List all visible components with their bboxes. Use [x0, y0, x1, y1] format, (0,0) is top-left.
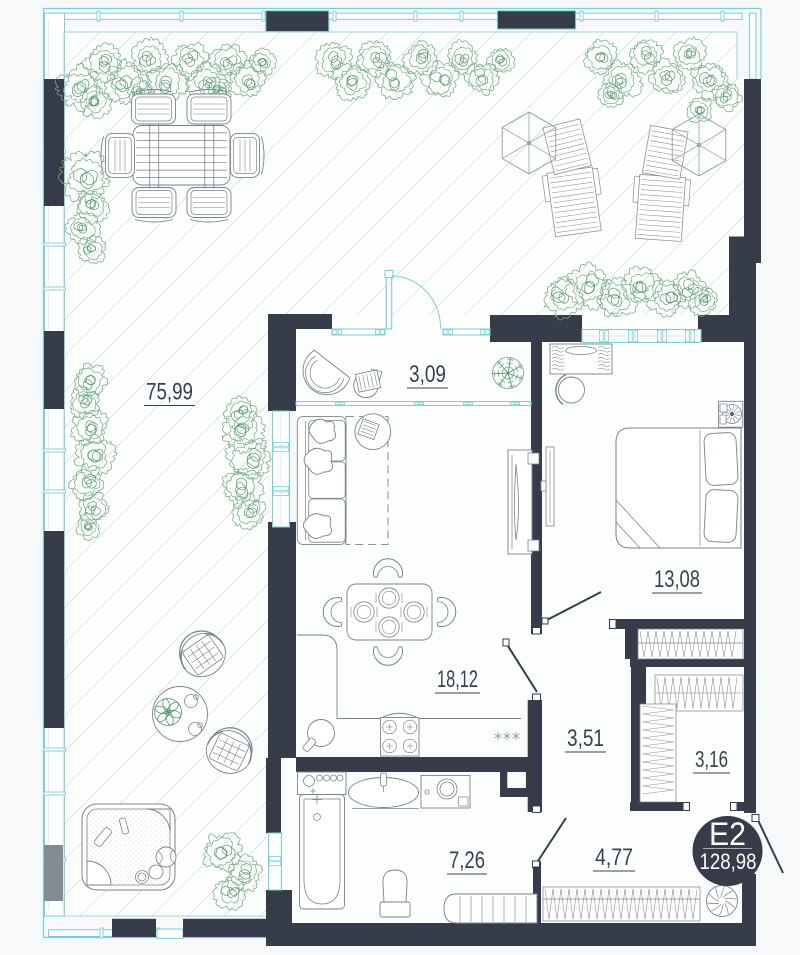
svg-text:75,99: 75,99 — [146, 379, 193, 406]
svg-text:3,16: 3,16 — [695, 746, 728, 772]
svg-text:4,77: 4,77 — [595, 844, 633, 871]
svg-text:128,98: 128,98 — [700, 849, 757, 874]
svg-text:3,09: 3,09 — [409, 361, 446, 388]
svg-text:13,08: 13,08 — [654, 566, 700, 593]
svg-text:7,26: 7,26 — [449, 847, 485, 874]
svg-text:18,12: 18,12 — [437, 666, 478, 693]
svg-text:3,51: 3,51 — [567, 725, 604, 752]
svg-text:E2: E2 — [709, 816, 746, 852]
